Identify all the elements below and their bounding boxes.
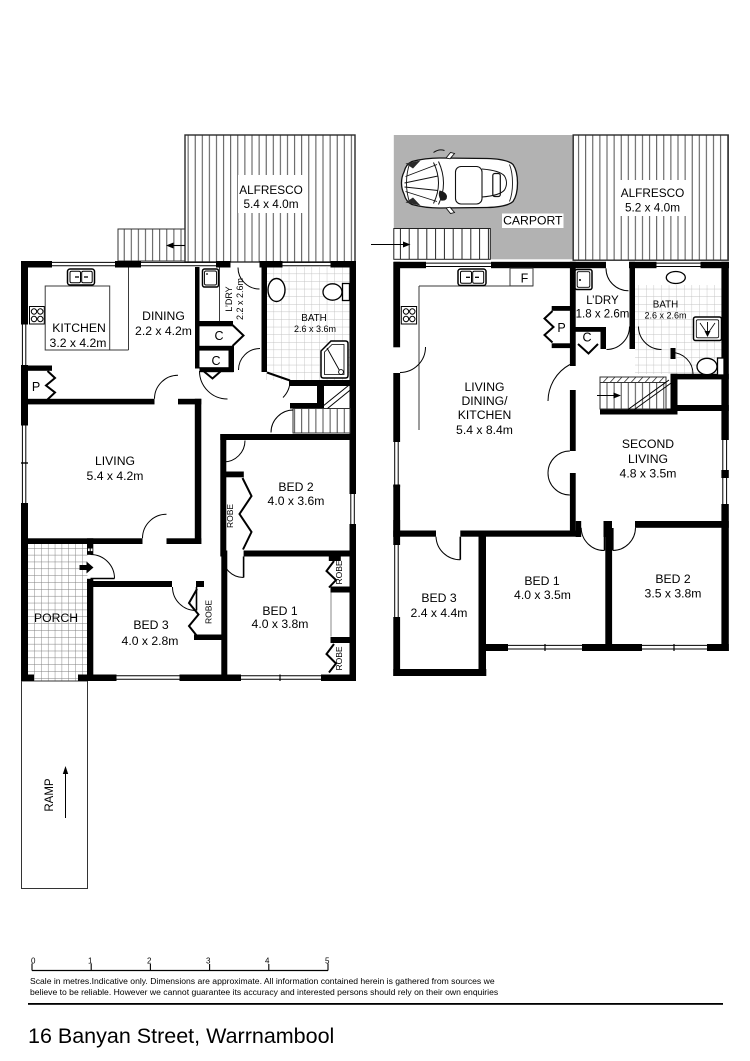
svg-text:5: 5 — [325, 957, 330, 966]
svg-text:ROBE: ROBE — [334, 646, 344, 670]
svg-text:DINING/: DINING/ — [461, 394, 508, 408]
svg-text:LIVING: LIVING — [95, 454, 135, 468]
svg-text:ALFRESCO: ALFRESCO — [239, 183, 303, 197]
svg-text:C: C — [214, 329, 223, 343]
svg-text:BATH: BATH — [653, 300, 678, 311]
svg-text:C: C — [211, 354, 220, 368]
svg-text:L’DRY: L’DRY — [586, 295, 619, 307]
svg-text:BED 2: BED 2 — [655, 572, 690, 586]
svg-text:4.0 x 3.6m: 4.0 x 3.6m — [268, 494, 325, 508]
svg-text:1: 1 — [88, 957, 93, 966]
svg-text:BED 1: BED 1 — [524, 574, 559, 588]
svg-text:3.5 x 3.8m: 3.5 x 3.8m — [645, 587, 702, 601]
svg-text:2.2 x 4.2m: 2.2 x 4.2m — [135, 324, 192, 338]
svg-text:BED 3: BED 3 — [421, 591, 456, 605]
svg-text:4.0 x 2.8m: 4.0 x 2.8m — [122, 634, 179, 648]
svg-text:4.0 x 3.5m: 4.0 x 3.5m — [514, 588, 571, 602]
svg-text:LIVING: LIVING — [465, 380, 505, 394]
svg-text:ROBE: ROBE — [225, 504, 235, 528]
svg-text:5.4 x 4.0m: 5.4 x 4.0m — [243, 197, 298, 211]
svg-text:L’DRY: L’DRY — [224, 286, 234, 311]
svg-text:KITCHEN: KITCHEN — [52, 321, 106, 335]
svg-text:BED 3: BED 3 — [133, 618, 168, 632]
svg-text:BED 1: BED 1 — [262, 604, 297, 618]
svg-text:16 Banyan Street, Warrnambool: 16 Banyan Street, Warrnambool — [28, 1024, 334, 1048]
svg-text:4.8 x 3.5m: 4.8 x 3.5m — [620, 467, 677, 481]
svg-text:2: 2 — [147, 957, 152, 966]
svg-text:SECOND: SECOND — [622, 437, 674, 451]
svg-text:believe to be reliable. Howeve: believe to be reliable. However we canno… — [30, 987, 498, 997]
svg-text:Scale in metres.Indicative onl: Scale in metres.Indicative only. Dimensi… — [30, 976, 495, 986]
svg-text:5.4 x 8.4m: 5.4 x 8.4m — [456, 423, 513, 437]
svg-text:5.4 x 4.2m: 5.4 x 4.2m — [87, 469, 144, 483]
svg-text:RAMP: RAMP — [44, 778, 56, 812]
svg-text:F: F — [521, 272, 529, 286]
svg-text:BED 2: BED 2 — [278, 480, 313, 494]
svg-text:4.0 x 3.8m: 4.0 x 3.8m — [252, 617, 309, 631]
svg-text:DINING: DINING — [142, 309, 185, 323]
svg-text:P: P — [557, 321, 565, 335]
svg-text:LIVING: LIVING — [628, 452, 668, 466]
svg-text:ROBE: ROBE — [204, 600, 214, 624]
svg-text:ALFRESCO: ALFRESCO — [621, 186, 685, 200]
svg-text:2.6 x 2.6m: 2.6 x 2.6m — [644, 311, 686, 321]
svg-text:PORCH: PORCH — [34, 611, 78, 625]
svg-text:1.8 x 2.6m: 1.8 x 2.6m — [576, 309, 630, 321]
svg-text:BATH: BATH — [301, 313, 326, 324]
svg-text:2.6 x 3.6m: 2.6 x 3.6m — [294, 324, 336, 334]
svg-text:CARPORT: CARPORT — [503, 214, 563, 228]
svg-text:5.2 x 4.0m: 5.2 x 4.0m — [625, 201, 680, 215]
svg-text:0: 0 — [31, 957, 36, 966]
svg-text:KITCHEN: KITCHEN — [458, 408, 512, 422]
svg-text:2.2 x 2.6m: 2.2 x 2.6m — [235, 278, 245, 320]
svg-text:ROBE: ROBE — [334, 560, 344, 584]
svg-text:3: 3 — [206, 957, 211, 966]
svg-text:P: P — [32, 380, 40, 394]
svg-text:4: 4 — [265, 957, 270, 966]
svg-text:C: C — [582, 331, 591, 345]
svg-text:2.4 x 4.4m: 2.4 x 4.4m — [411, 606, 468, 620]
svg-text:3.2 x 4.2m: 3.2 x 4.2m — [50, 336, 107, 350]
